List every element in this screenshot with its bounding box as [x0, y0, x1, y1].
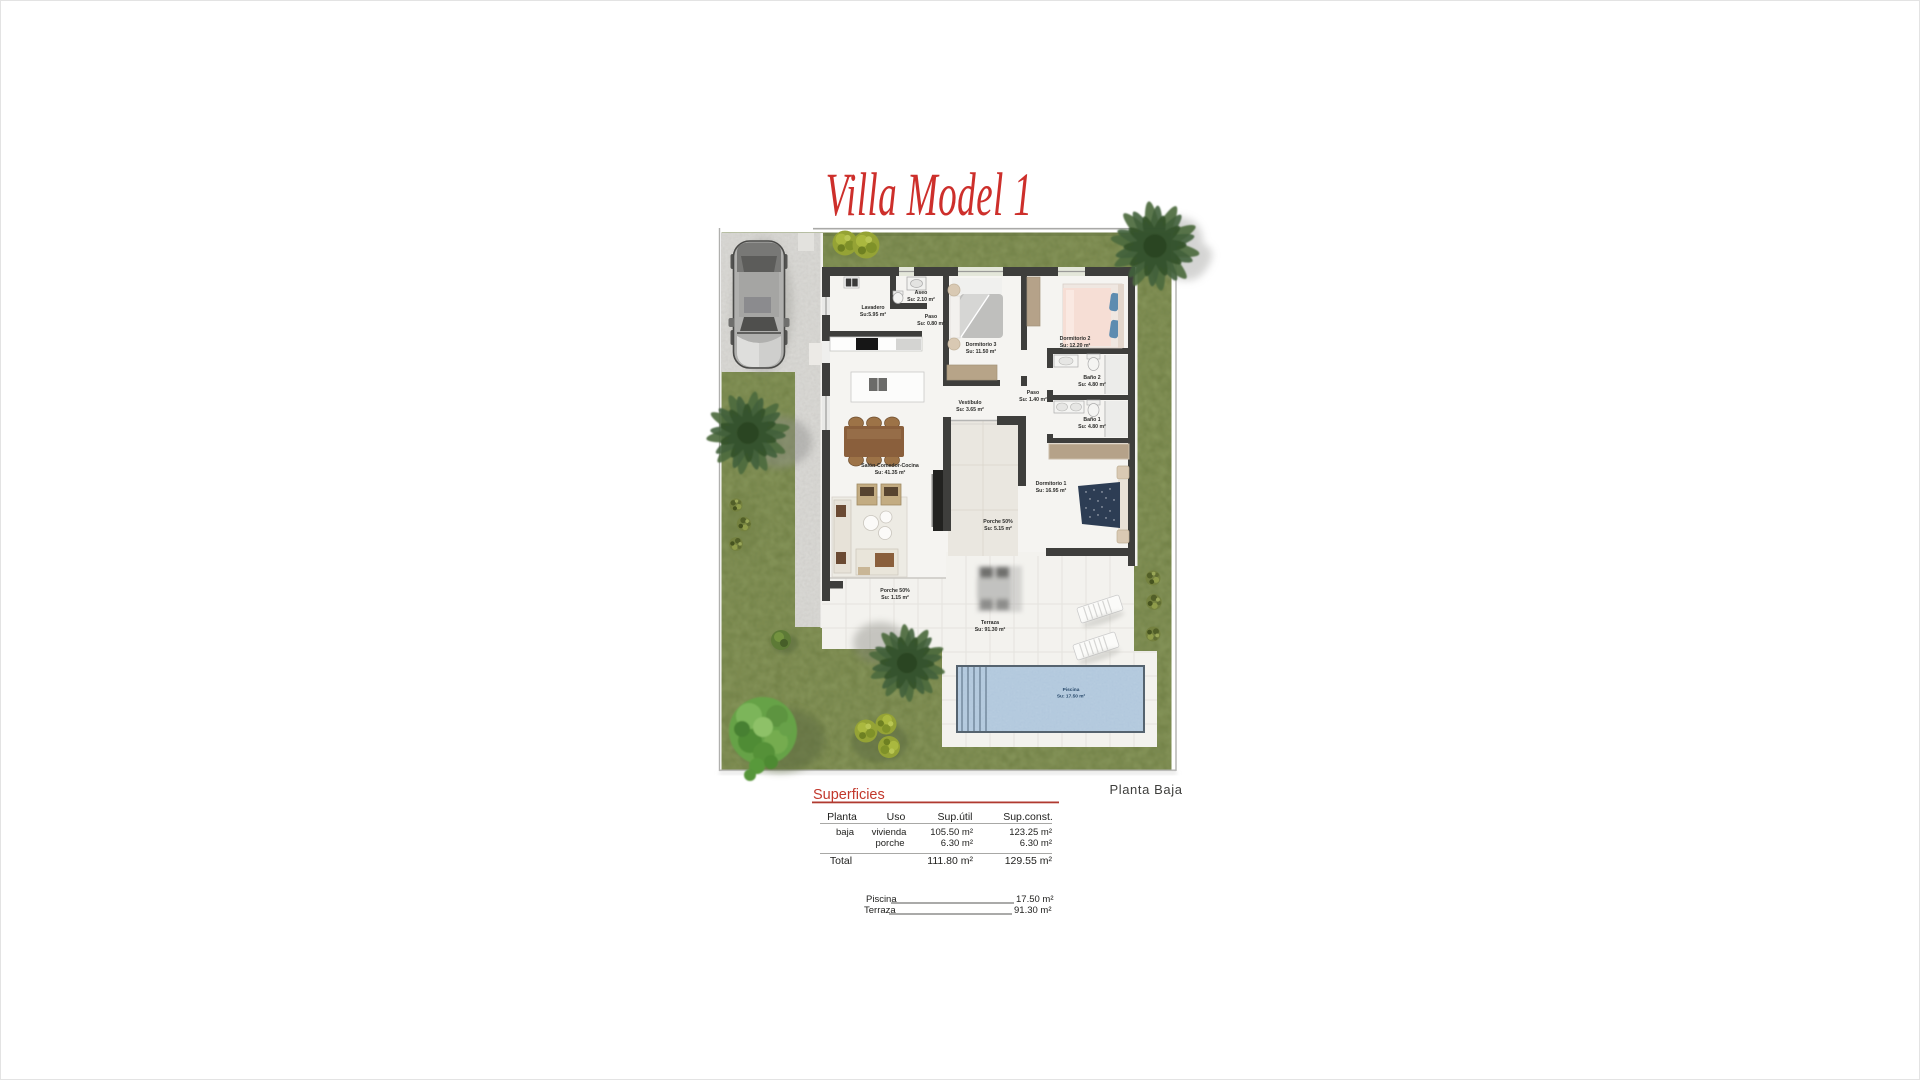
- svg-text:Su: 3.65 m²: Su: 3.65 m²: [956, 407, 984, 413]
- svg-text:Su: 4.80 m²: Su: 4.80 m²: [1078, 424, 1106, 430]
- svg-text:Su: 11.50 m²: Su: 11.50 m²: [966, 349, 997, 355]
- svg-text:6.30 m²: 6.30 m²: [941, 838, 973, 849]
- svg-text:111.80 m²: 111.80 m²: [927, 855, 973, 867]
- svg-text:Terraza: Terraza: [981, 620, 999, 626]
- svg-text:Porche 50%: Porche 50%: [880, 588, 910, 594]
- svg-text:Dormitorio 1: Dormitorio 1: [1036, 481, 1067, 487]
- svg-text:Villa Model 1: Villa Model 1: [826, 161, 1033, 229]
- svg-text:Su:5.95 m²: Su:5.95 m²: [860, 312, 887, 318]
- svg-text:105.50 m²: 105.50 m²: [930, 827, 973, 838]
- svg-text:Superficies: Superficies: [813, 787, 885, 803]
- svg-text:Total: Total: [830, 855, 852, 867]
- svg-text:Su: 4.80 m²: Su: 4.80 m²: [1078, 382, 1106, 388]
- svg-text:baja: baja: [836, 827, 855, 838]
- svg-text:123.25 m²: 123.25 m²: [1009, 827, 1052, 838]
- svg-text:Sup.útil: Sup.útil: [937, 811, 972, 823]
- svg-text:Su: 1.40 m²: Su: 1.40 m²: [1019, 397, 1047, 403]
- svg-text:129.55 m²: 129.55 m²: [1005, 855, 1053, 867]
- svg-text:Uso: Uso: [887, 811, 906, 823]
- svg-text:Baño 2: Baño 2: [1083, 375, 1100, 381]
- svg-text:Su: 17.50 m²: Su: 17.50 m²: [1057, 694, 1086, 700]
- svg-text:Porche 50%: Porche 50%: [983, 519, 1013, 525]
- svg-text:Su: 2.10 m²: Su: 2.10 m²: [907, 297, 935, 303]
- svg-text:Su: 41.35 m²: Su: 41.35 m²: [875, 470, 906, 476]
- svg-text:6.30 m²: 6.30 m²: [1020, 838, 1052, 849]
- svg-text:Su: 12.20 m²: Su: 12.20 m²: [1060, 343, 1091, 349]
- svg-text:Sup.const.: Sup.const.: [1003, 811, 1053, 823]
- svg-text:Su: 91.30 m²: Su: 91.30 m²: [975, 627, 1006, 633]
- svg-text:porche: porche: [875, 838, 904, 849]
- svg-text:Planta Baja: Planta Baja: [1109, 782, 1182, 797]
- svg-text:vivienda: vivienda: [872, 827, 908, 838]
- svg-text:Aseo: Aseo: [915, 290, 928, 296]
- svg-text:Dormitorio 3: Dormitorio 3: [966, 342, 997, 348]
- svg-text:Paso: Paso: [925, 314, 937, 320]
- svg-text:Dormitorio 2: Dormitorio 2: [1060, 336, 1091, 342]
- svg-text:Paso: Paso: [1027, 390, 1039, 396]
- svg-text:Su: 16.95 m²: Su: 16.95 m²: [1036, 488, 1067, 494]
- svg-text:Piscina: Piscina: [1063, 687, 1080, 693]
- svg-text:91.30 m²: 91.30 m²: [1014, 905, 1052, 916]
- svg-text:Planta: Planta: [827, 811, 857, 823]
- svg-text:Su: 0.80 m²: Su: 0.80 m²: [917, 321, 945, 327]
- svg-text:Salón-Comedor-Cocina: Salón-Comedor-Cocina: [861, 463, 919, 469]
- svg-text:Baño 1: Baño 1: [1083, 417, 1100, 423]
- svg-text:Vestíbulo: Vestíbulo: [958, 400, 981, 406]
- svg-text:Su: 1.15 m²: Su: 1.15 m²: [881, 595, 909, 601]
- svg-text:17.50 m²: 17.50 m²: [1016, 894, 1054, 905]
- svg-text:Lavadero: Lavadero: [861, 305, 884, 311]
- svg-text:Su: 5.15 m²: Su: 5.15 m²: [984, 526, 1012, 532]
